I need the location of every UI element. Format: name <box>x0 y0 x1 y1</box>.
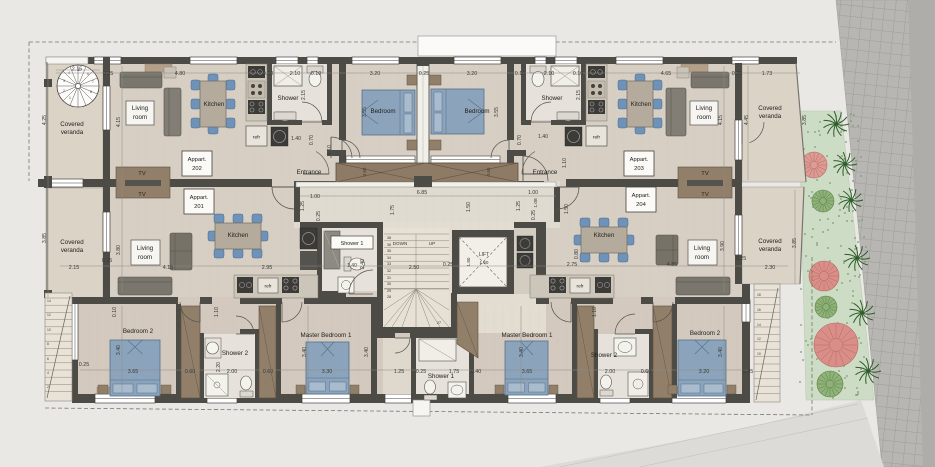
svg-text:0.10: 0.10 <box>515 71 526 77</box>
svg-text:4.15: 4.15 <box>116 117 122 127</box>
svg-text:TV: TV <box>138 192 146 198</box>
svg-text:room: room <box>697 114 711 121</box>
svg-text:refr: refr <box>265 284 272 289</box>
svg-text:0.10: 0.10 <box>573 71 584 77</box>
svg-text:0.10: 0.10 <box>112 307 118 317</box>
svg-text:LIFT: LIFT <box>479 252 489 258</box>
svg-text:28: 28 <box>387 295 391 299</box>
svg-text:veranda: veranda <box>759 113 782 120</box>
svg-text:0.25: 0.25 <box>102 258 113 264</box>
svg-text:2.15: 2.15 <box>576 90 582 100</box>
svg-text:TV: TV <box>701 192 709 198</box>
svg-text:0.25: 0.25 <box>531 210 537 220</box>
svg-text:0.25: 0.25 <box>443 262 454 268</box>
svg-text:2.10: 2.10 <box>290 71 301 77</box>
svg-text:Living: Living <box>696 105 713 112</box>
svg-text:Entrance: Entrance <box>533 169 558 176</box>
svg-text:201: 201 <box>194 204 204 210</box>
svg-text:Shower 2: Shower 2 <box>222 350 249 357</box>
svg-text:Shower 1: Shower 1 <box>341 241 364 247</box>
svg-text:4.85: 4.85 <box>667 262 678 268</box>
svg-text:12: 12 <box>47 313 51 317</box>
svg-text:Appart.: Appart. <box>632 193 651 199</box>
svg-text:1.10: 1.10 <box>214 307 220 317</box>
svg-text:UP: UP <box>429 241 435 246</box>
svg-text:4.15: 4.15 <box>718 115 724 125</box>
svg-text:4.25: 4.25 <box>42 115 48 125</box>
svg-text:Living: Living <box>132 105 149 112</box>
svg-text:35: 35 <box>387 249 391 253</box>
svg-text:1.80: 1.80 <box>466 257 471 266</box>
svg-text:refr: refr <box>577 284 584 289</box>
svg-text:Shower 1: Shower 1 <box>428 373 455 380</box>
svg-text:Master Bedroom 1: Master Bedroom 1 <box>301 332 352 339</box>
svg-text:1.40: 1.40 <box>538 134 548 140</box>
svg-text:3.20: 3.20 <box>370 71 381 77</box>
svg-text:refr: refr <box>253 135 261 141</box>
svg-text:1.00: 1.00 <box>310 194 320 200</box>
svg-text:27: 27 <box>437 321 441 325</box>
svg-text:TV: TV <box>138 171 146 177</box>
svg-text:12: 12 <box>757 337 761 341</box>
svg-text:0.60: 0.60 <box>518 262 529 268</box>
svg-text:3: 3 <box>63 79 65 83</box>
svg-text:3.65: 3.65 <box>522 369 533 375</box>
svg-text:2.95: 2.95 <box>262 265 273 271</box>
svg-text:Bedroom 2: Bedroom 2 <box>123 328 154 335</box>
svg-text:0.25: 0.25 <box>103 71 114 77</box>
svg-text:14: 14 <box>47 299 51 303</box>
svg-text:3.20: 3.20 <box>467 71 478 77</box>
svg-text:TV: TV <box>701 171 709 177</box>
svg-text:6: 6 <box>47 357 49 361</box>
svg-text:0.40: 0.40 <box>471 369 482 375</box>
svg-text:1.75: 1.75 <box>390 205 396 215</box>
svg-text:0.70: 0.70 <box>517 135 523 145</box>
svg-text:veranda: veranda <box>759 246 782 253</box>
svg-text:29: 29 <box>387 289 391 293</box>
svg-text:0.60: 0.60 <box>185 369 196 375</box>
svg-text:34: 34 <box>387 256 391 260</box>
svg-text:Appart.: Appart. <box>630 157 649 163</box>
svg-text:6: 6 <box>87 72 89 76</box>
svg-text:2.15: 2.15 <box>72 67 83 73</box>
svg-text:6.85: 6.85 <box>417 190 428 196</box>
svg-text:8: 8 <box>90 90 92 94</box>
svg-text:10: 10 <box>757 352 761 356</box>
svg-text:3.40: 3.40 <box>519 347 525 357</box>
svg-text:room: room <box>133 114 147 121</box>
svg-text:3.40: 3.40 <box>302 347 308 357</box>
svg-text:0.25: 0.25 <box>743 369 754 375</box>
svg-text:0.25: 0.25 <box>416 369 427 375</box>
svg-text:1.00: 1.00 <box>528 190 538 196</box>
svg-text:4.15: 4.15 <box>163 265 174 271</box>
svg-text:Shower: Shower <box>278 95 299 102</box>
svg-text:30: 30 <box>387 282 391 286</box>
svg-text:3.85: 3.85 <box>802 115 808 125</box>
svg-text:Entrance: Entrance <box>297 169 322 176</box>
svg-text:Appart.: Appart. <box>188 157 207 163</box>
svg-text:4: 4 <box>47 371 49 375</box>
svg-text:3.85: 3.85 <box>42 233 48 243</box>
svg-text:1.50: 1.50 <box>564 204 570 214</box>
svg-text:32: 32 <box>387 269 391 273</box>
svg-text:18: 18 <box>757 293 761 297</box>
svg-text:10: 10 <box>47 328 51 332</box>
svg-text:Bedroom 2: Bedroom 2 <box>690 330 721 337</box>
svg-text:36: 36 <box>387 243 391 247</box>
svg-text:Shower 2: Shower 2 <box>591 352 618 359</box>
svg-text:2.00: 2.00 <box>227 369 238 375</box>
svg-text:2.10: 2.10 <box>544 71 555 77</box>
svg-text:Master Bedroom 1: Master Bedroom 1 <box>502 332 553 339</box>
svg-text:1.73: 1.73 <box>762 71 773 77</box>
svg-text:1: 1 <box>69 96 71 100</box>
svg-text:4.45: 4.45 <box>744 115 750 125</box>
svg-text:2.00: 2.00 <box>605 369 616 375</box>
svg-text:Kitchen: Kitchen <box>631 101 652 108</box>
svg-text:1.10: 1.10 <box>592 307 598 317</box>
svg-text:0.25: 0.25 <box>419 71 430 77</box>
svg-text:2.15: 2.15 <box>69 265 80 271</box>
svg-text:204: 204 <box>636 202 646 208</box>
svg-text:2.20: 2.20 <box>216 362 222 372</box>
svg-text:room: room <box>138 254 152 261</box>
svg-text:1.50: 1.50 <box>480 260 489 265</box>
svg-text:1.10: 1.10 <box>562 158 568 168</box>
svg-text:Bedroom: Bedroom <box>370 108 395 115</box>
svg-text:veranda: veranda <box>61 247 84 254</box>
svg-text:Living: Living <box>137 245 154 252</box>
svg-text:Kitchen: Kitchen <box>594 232 615 239</box>
svg-text:3.40: 3.40 <box>116 345 122 355</box>
svg-text:1.25: 1.25 <box>300 201 306 211</box>
svg-text:3.85: 3.85 <box>792 238 798 248</box>
svg-text:31: 31 <box>387 276 391 280</box>
svg-text:0.60: 0.60 <box>362 167 367 176</box>
svg-text:16: 16 <box>757 308 761 312</box>
svg-text:1.25: 1.25 <box>394 369 405 375</box>
svg-text:14: 14 <box>757 323 761 327</box>
svg-text:Kitchen: Kitchen <box>228 232 249 239</box>
svg-text:0.60: 0.60 <box>263 369 274 375</box>
svg-text:1.08: 1.08 <box>533 198 539 208</box>
svg-text:1.40: 1.40 <box>291 136 301 142</box>
svg-text:0.60: 0.60 <box>486 167 491 176</box>
svg-text:0.70: 0.70 <box>309 135 315 145</box>
svg-text:3.20: 3.20 <box>699 369 710 375</box>
svg-text:2.50: 2.50 <box>409 265 420 271</box>
svg-text:Covered: Covered <box>758 238 782 245</box>
svg-text:0.80: 0.80 <box>574 249 580 259</box>
svg-text:0.60: 0.60 <box>641 369 652 375</box>
svg-text:202: 202 <box>192 166 202 172</box>
svg-text:Bedroom: Bedroom <box>464 108 489 115</box>
svg-text:33: 33 <box>387 262 391 266</box>
svg-text:3.55: 3.55 <box>494 107 500 117</box>
svg-text:2.30: 2.30 <box>765 265 776 271</box>
svg-text:7: 7 <box>92 80 94 84</box>
svg-text:4.80: 4.80 <box>175 71 186 77</box>
svg-text:4.65: 4.65 <box>661 71 672 77</box>
svg-text:3.90: 3.90 <box>720 241 726 251</box>
svg-text:2.40: 2.40 <box>360 259 366 269</box>
svg-text:1.25: 1.25 <box>516 201 522 211</box>
svg-text:Covered: Covered <box>60 239 84 246</box>
svg-text:3.80: 3.80 <box>116 245 122 255</box>
svg-text:DOWN: DOWN <box>393 241 408 246</box>
svg-text:Shower: Shower <box>542 95 563 102</box>
svg-text:0.25: 0.25 <box>316 211 322 221</box>
svg-text:Appart.: Appart. <box>190 195 209 201</box>
svg-text:1.50: 1.50 <box>466 202 472 212</box>
svg-text:Living: Living <box>694 245 711 252</box>
svg-text:0.25: 0.25 <box>736 256 747 262</box>
svg-text:veranda: veranda <box>61 129 84 136</box>
svg-text:2: 2 <box>63 89 65 93</box>
svg-text:room: room <box>695 254 709 261</box>
svg-text:3.40: 3.40 <box>364 347 370 357</box>
svg-text:Kitchen: Kitchen <box>204 101 225 108</box>
svg-text:refr: refr <box>593 135 601 141</box>
svg-text:0.10: 0.10 <box>311 71 322 77</box>
svg-text:3.40: 3.40 <box>718 347 724 357</box>
svg-text:8: 8 <box>47 342 49 346</box>
svg-text:38: 38 <box>387 236 391 240</box>
svg-text:1.10: 1.10 <box>327 145 333 155</box>
svg-text:3.65: 3.65 <box>128 369 139 375</box>
svg-text:0.25: 0.25 <box>79 362 90 368</box>
svg-text:2.75: 2.75 <box>567 262 578 268</box>
svg-text:0.25: 0.25 <box>732 71 743 77</box>
svg-text:2: 2 <box>47 385 49 389</box>
svg-text:3.30: 3.30 <box>322 369 333 375</box>
svg-text:Covered: Covered <box>758 105 782 112</box>
svg-text:0.10: 0.10 <box>263 71 274 77</box>
svg-text:Covered: Covered <box>60 121 84 128</box>
svg-text:2.15: 2.15 <box>301 90 307 100</box>
svg-text:203: 203 <box>634 166 644 172</box>
svg-text:3.55: 3.55 <box>362 107 368 117</box>
